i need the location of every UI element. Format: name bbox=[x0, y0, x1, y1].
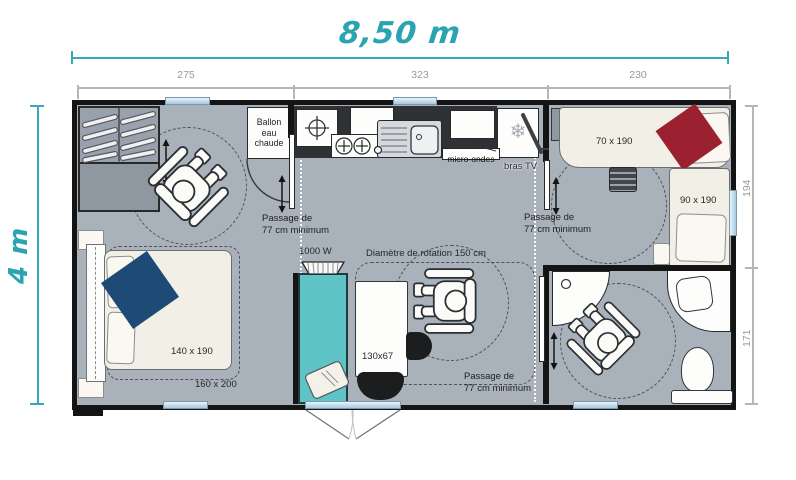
headboard-master bbox=[86, 244, 106, 382]
passage-note-3: Passage de 77 cm minimum bbox=[464, 371, 531, 394]
table-size-label: 130x67 bbox=[362, 351, 393, 362]
overall-width-label: 8,50 m bbox=[278, 16, 522, 51]
french-door-swing bbox=[306, 410, 400, 439]
passage-1-line2: 77 cm minimum bbox=[262, 225, 329, 237]
water-heater-line1: Ballon bbox=[248, 117, 290, 128]
pillow-90x190 bbox=[675, 213, 727, 263]
headboard-dashed-line bbox=[95, 247, 96, 379]
left-dimension-tick-top bbox=[30, 105, 44, 107]
window-right-bedroom2 bbox=[729, 190, 737, 236]
bed-zone-size-label: 160 x 200 bbox=[195, 379, 237, 390]
rotation-diameter-label: Diamètre de rotation 150 cm bbox=[366, 248, 486, 259]
bed-step-ladder bbox=[609, 167, 637, 192]
right-tick-3 bbox=[745, 403, 758, 405]
sliding-door-bathroom bbox=[539, 276, 545, 362]
right-label-194: 194 bbox=[741, 160, 753, 216]
window-bottom-master bbox=[163, 401, 208, 409]
bench-seat bbox=[298, 273, 348, 404]
passage-note-1: Passage de 77 cm minimum bbox=[262, 213, 329, 236]
washbasin bbox=[675, 275, 714, 314]
kitchen-cabinet-c bbox=[450, 110, 495, 139]
passage-3-line2: 77 cm minimum bbox=[464, 383, 531, 395]
right-tick-2 bbox=[745, 267, 758, 269]
top-dimension-tick-left bbox=[71, 51, 73, 64]
wall-bedroom1-kitchen bbox=[288, 100, 294, 138]
toilet-bowl bbox=[681, 347, 714, 392]
segment-label-275: 275 bbox=[146, 69, 226, 81]
heater-label: 1000 W bbox=[299, 246, 332, 257]
segment-tick-1 bbox=[77, 85, 79, 99]
window-bottom-bathroom bbox=[573, 401, 618, 409]
nightstand-90x190 bbox=[653, 243, 670, 265]
water-heater-line3: chaude bbox=[248, 138, 290, 149]
top-dimension-tick-right bbox=[727, 51, 729, 64]
left-dimension-line bbox=[37, 106, 39, 404]
wall-bedroom2-bathroom bbox=[543, 265, 736, 271]
passage-3-line1: Passage de bbox=[464, 371, 531, 383]
right-label-171: 171 bbox=[741, 310, 753, 366]
bed-70x190-label: 70 x 190 bbox=[596, 136, 632, 147]
window-top-kitchen bbox=[393, 97, 437, 105]
segment-dimension-line bbox=[78, 87, 730, 89]
entrance-step bbox=[73, 410, 103, 416]
segment-tick-2 bbox=[293, 85, 295, 99]
overall-height-label: 4 m bbox=[4, 218, 34, 292]
left-dimension-tick-bottom bbox=[30, 403, 44, 405]
passage-1-line1: Passage de bbox=[262, 213, 329, 225]
microwave-label: micro-ondes bbox=[447, 154, 494, 164]
fridge-freezer: ❄ bbox=[497, 108, 539, 158]
sink-unit bbox=[377, 120, 442, 158]
passage-2-line1: Passage de bbox=[524, 212, 591, 224]
segment-label-323: 323 bbox=[380, 69, 460, 81]
passage-2-line2: 77 cm minimum bbox=[524, 224, 591, 236]
sliding-door-bedroom1 bbox=[289, 134, 295, 209]
sliding-door-bedroom2 bbox=[544, 160, 550, 210]
bed-master-size-label: 140 x 190 bbox=[171, 346, 213, 357]
window-top-bedroom1 bbox=[165, 97, 210, 105]
water-heater-closet: Ballon eau chaude bbox=[247, 107, 291, 159]
floor-plan-canvas: 8,50 m 275 323 230 4 m 194 171 Ballon bbox=[0, 0, 796, 480]
water-heater-line2: eau bbox=[248, 128, 290, 139]
wall-bedroom-master-living bbox=[293, 273, 298, 404]
passage-note-2: Passage de 77 cm minimum bbox=[524, 212, 591, 235]
wall-living-bedroom2 bbox=[543, 100, 549, 162]
segment-tick-3 bbox=[547, 85, 549, 99]
segment-label-230: 230 bbox=[598, 69, 678, 81]
tv-arm-label: bras TV bbox=[504, 161, 537, 172]
bed-90x190-label: 90 x 190 bbox=[680, 195, 716, 206]
right-tick-1 bbox=[745, 105, 758, 107]
wardrobe-shelves bbox=[78, 162, 160, 212]
dining-table bbox=[355, 281, 408, 377]
wardrobe-hanging bbox=[78, 106, 160, 164]
toilet-tank bbox=[671, 390, 733, 404]
french-door bbox=[305, 401, 401, 409]
snowflake-icon: ❄ bbox=[510, 121, 527, 143]
segment-tick-4 bbox=[729, 85, 731, 99]
top-dimension-line bbox=[72, 57, 728, 59]
